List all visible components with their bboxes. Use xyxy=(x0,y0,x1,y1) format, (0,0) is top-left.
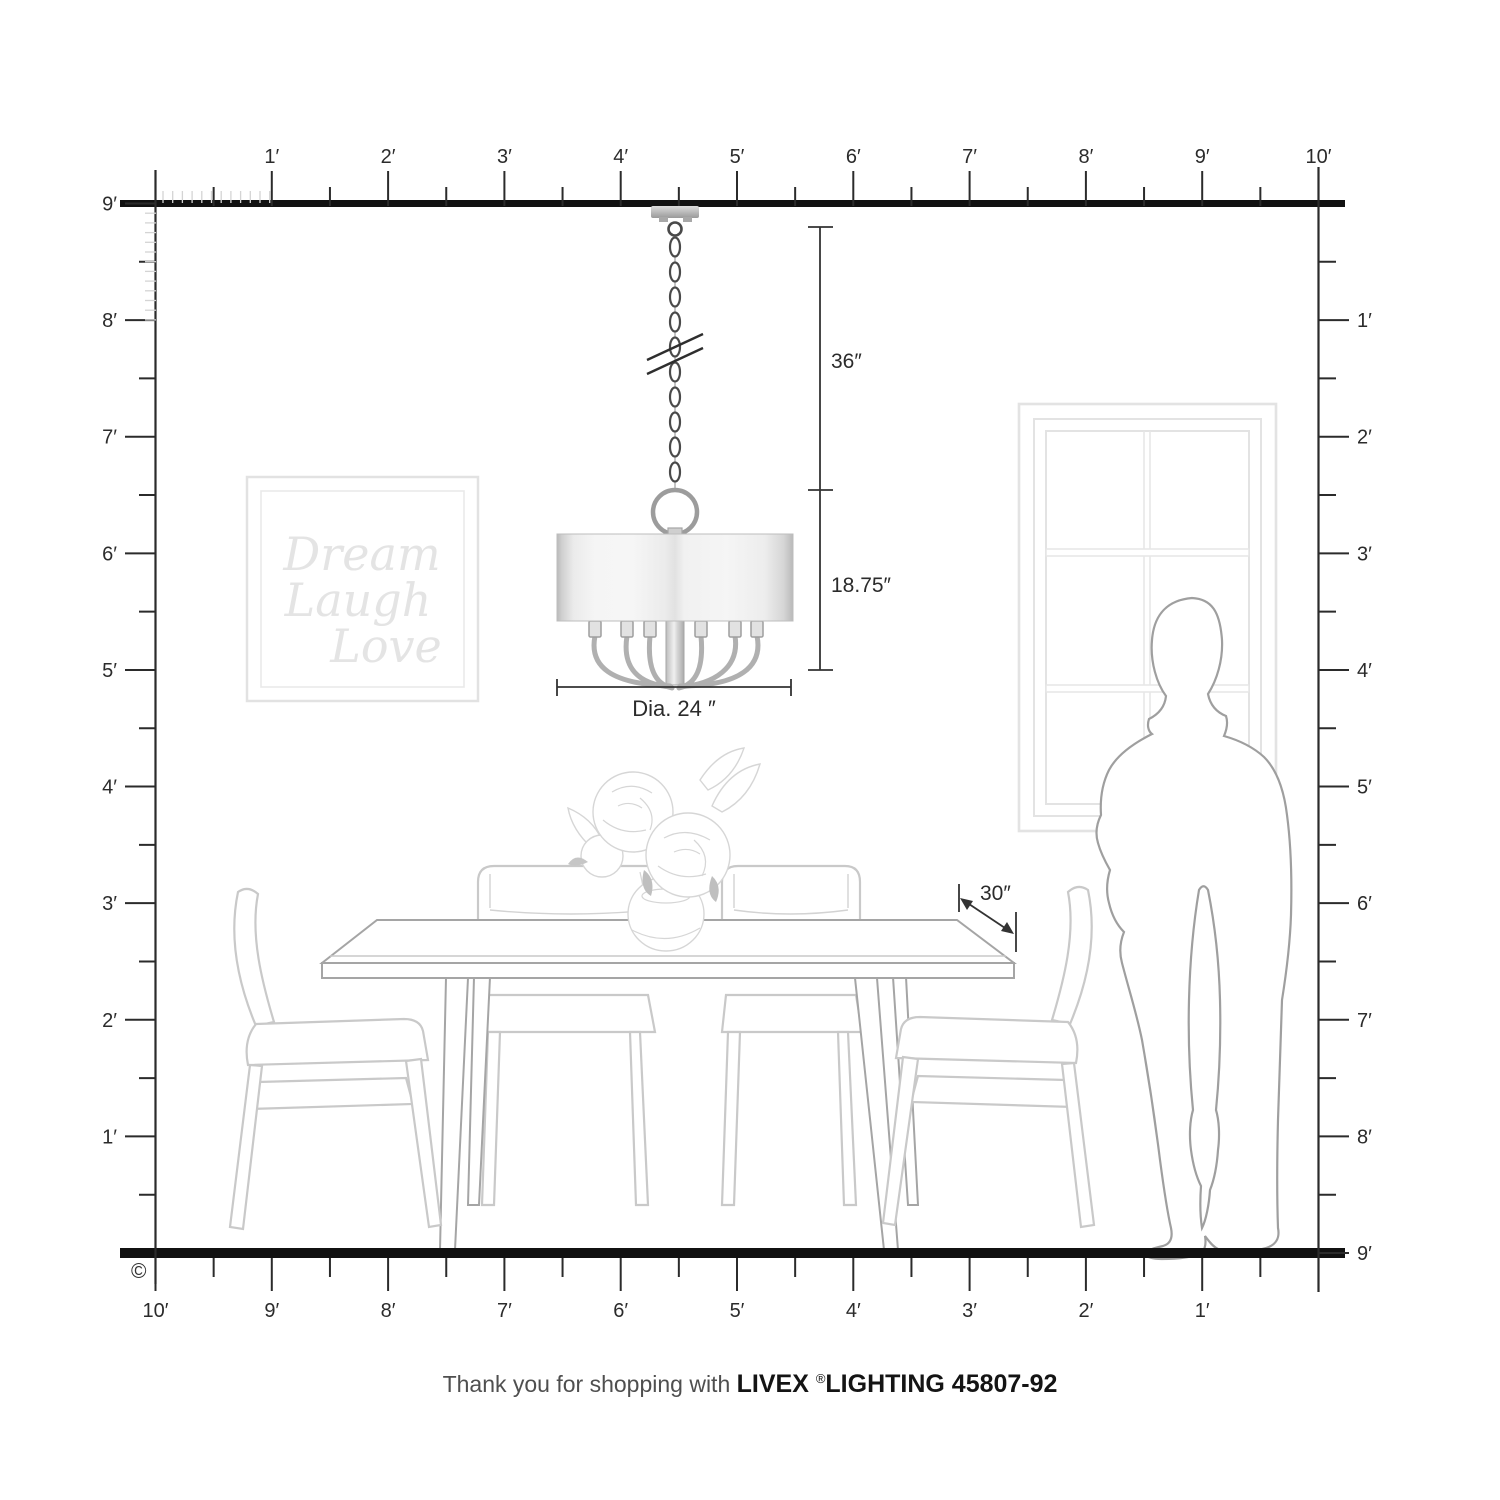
chain-link xyxy=(670,238,680,257)
ruler-label: 4′ xyxy=(102,777,117,799)
chair-leg xyxy=(722,1032,740,1205)
ruler-label: 5′ xyxy=(102,660,117,682)
person-silhouette xyxy=(1097,598,1292,1259)
ruler-label: 10′ xyxy=(143,1300,169,1322)
chair-leg xyxy=(838,1032,856,1205)
ruler-label: 3′ xyxy=(497,146,512,168)
chair-back-post xyxy=(234,889,274,1026)
ruler-label: 6′ xyxy=(102,543,117,565)
chain-link xyxy=(670,263,680,282)
diameter-label: Dia. 24 ″ xyxy=(632,696,716,721)
chair-seat-cushion xyxy=(896,1017,1077,1063)
chair-leg-front xyxy=(406,1059,441,1227)
chain-link xyxy=(670,463,680,482)
ruler-label: 7′ xyxy=(497,1300,512,1322)
registered-trademark-icon: ® xyxy=(816,1371,826,1386)
ruler-label: 1′ xyxy=(102,1126,117,1148)
chain-link xyxy=(670,288,680,307)
ruler-label: 8′ xyxy=(381,1300,396,1322)
ruler-label: 8′ xyxy=(1078,146,1093,168)
footer-brand: LIVEX xyxy=(737,1370,816,1398)
candle-cup xyxy=(621,621,633,637)
arrowhead xyxy=(1001,922,1014,934)
ruler-label: 4′ xyxy=(613,146,628,168)
chair-seat xyxy=(722,995,862,1032)
arrowhead xyxy=(960,898,973,910)
hang-height-label: 36″ xyxy=(831,350,862,373)
chain-link xyxy=(670,413,680,432)
chain-link xyxy=(670,438,680,457)
scale-diagram: Dream Laugh Love xyxy=(0,0,1500,1500)
chain-link xyxy=(670,388,680,407)
chair-stretcher-shelf xyxy=(911,1076,1073,1107)
ruler-label: 9′ xyxy=(102,194,117,216)
ruler-label: 2′ xyxy=(1357,427,1372,449)
drum-shade xyxy=(557,534,793,621)
ruler-label: 4′ xyxy=(846,1300,861,1322)
ruler-label: 5′ xyxy=(730,146,745,168)
ruler-label: 7′ xyxy=(1357,1010,1372,1032)
candle-cup xyxy=(751,621,763,637)
candle-cup xyxy=(589,621,601,637)
chain-link xyxy=(670,363,680,382)
chair-seat xyxy=(482,995,655,1032)
ruler-label: 7′ xyxy=(102,427,117,449)
ruler-label: 10′ xyxy=(1306,146,1332,168)
window-rail-upper xyxy=(1046,549,1249,556)
canopy-loop xyxy=(669,223,682,236)
inch-tick-marks xyxy=(145,191,270,320)
ruler-label: 5′ xyxy=(730,1300,745,1322)
table-leg-front-left xyxy=(440,978,468,1250)
copyright-symbol: © xyxy=(131,1260,147,1283)
ruler-label: 3′ xyxy=(1357,543,1372,565)
chair-leg xyxy=(630,1032,648,1205)
footer-suffix: LIGHTING 45807-92 xyxy=(825,1370,1057,1398)
chair-back-post xyxy=(1052,887,1092,1024)
back-chair-right xyxy=(722,866,862,1205)
ruler-label: 1′ xyxy=(264,146,279,168)
ruler-label: 2′ xyxy=(381,146,396,168)
left-ruler: 9′8′7′6′5′4′3′2′1′ xyxy=(102,194,156,1195)
chair-leg-back xyxy=(230,1065,262,1229)
candle-cup xyxy=(729,621,741,637)
ruler-label: 5′ xyxy=(1357,777,1372,799)
table-depth-label: 30″ xyxy=(980,882,1011,905)
chair-leg-back xyxy=(1062,1063,1094,1227)
fixture-height-label: 18.75″ xyxy=(831,574,892,597)
footer-prefix: Thank you for shopping with xyxy=(443,1371,737,1397)
window-rail-lower xyxy=(1046,685,1249,692)
table-front-band xyxy=(322,963,1014,978)
candle-cup xyxy=(695,621,707,637)
wall-art-frame: Dream Laugh Love xyxy=(247,477,478,701)
top-ruler: 1′2′3′4′5′6′7′8′9′10′ xyxy=(214,146,1332,206)
right-ruler: 1′2′3′4′5′6′7′8′9′ xyxy=(1318,262,1372,1265)
ruler-label: 7′ xyxy=(962,146,977,168)
ruler-label: 1′ xyxy=(1195,1300,1210,1322)
ruler-label: 6′ xyxy=(846,146,861,168)
ruler-label: 9′ xyxy=(1357,1243,1372,1265)
chair-stretcher-shelf xyxy=(251,1078,413,1109)
wall-art-text-love: Love xyxy=(329,619,441,673)
ruler-label: 8′ xyxy=(1357,1126,1372,1148)
candle-cup xyxy=(644,621,656,637)
canopy-tab xyxy=(659,217,668,222)
ruler-label: 1′ xyxy=(1357,310,1372,332)
bottom-ruler: 1′2′3′4′5′6′7′8′9′10′ xyxy=(143,1258,1261,1322)
ruler-label: 9′ xyxy=(264,1300,279,1322)
ruler-label: 8′ xyxy=(102,310,117,332)
ruler-label: 4′ xyxy=(1357,660,1372,682)
ruler-label: 3′ xyxy=(102,893,117,915)
dining-set xyxy=(230,748,1094,1250)
canopy-tab xyxy=(683,217,692,222)
ruler-label: 2′ xyxy=(102,1010,117,1032)
chair-seat-cushion xyxy=(247,1019,428,1065)
ruler-label: 6′ xyxy=(613,1300,628,1322)
ruler-label: 2′ xyxy=(1078,1300,1093,1322)
chandelier xyxy=(557,206,793,688)
chain-link xyxy=(670,313,680,332)
footer-text: Thank you for shopping with LIVEX ®LIGHT… xyxy=(443,1370,1058,1398)
ruler-label: 3′ xyxy=(962,1300,977,1322)
ceiling-canopy xyxy=(651,206,699,218)
ruler-label: 6′ xyxy=(1357,893,1372,915)
ruler-label: 9′ xyxy=(1195,146,1210,168)
